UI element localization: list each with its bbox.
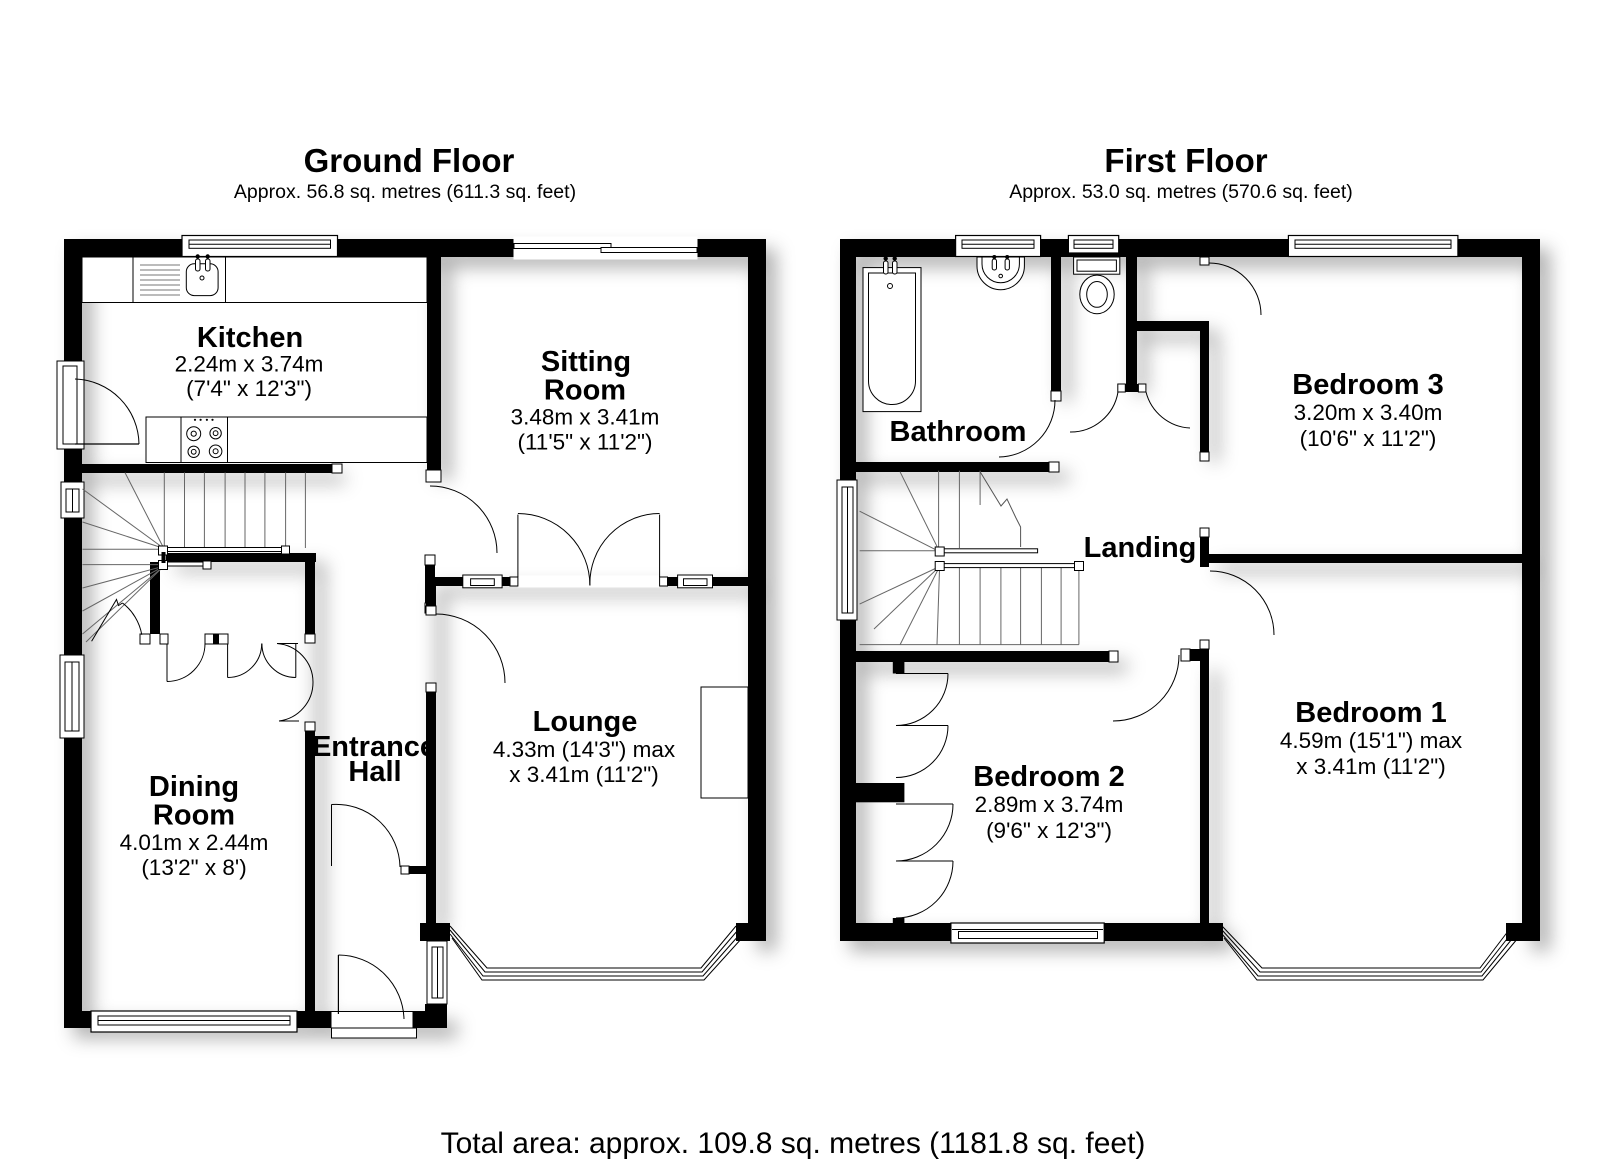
svg-text:Bedroom 1: Bedroom 1: [1295, 697, 1446, 729]
svg-text:Kitchen: Kitchen: [197, 322, 303, 354]
svg-text:Approx. 53.0 sq. metres (570.6: Approx. 53.0 sq. metres (570.6 sq. feet): [1009, 181, 1353, 203]
svg-text:Sitting: Sitting: [541, 346, 631, 378]
svg-text:Landing: Landing: [1084, 532, 1197, 564]
svg-text:2.89m x 3.74m: 2.89m x 3.74m: [975, 792, 1124, 817]
svg-text:4.01m x 2.44m: 4.01m x 2.44m: [120, 830, 269, 855]
svg-text:4.59m (15'1") max: 4.59m (15'1") max: [1280, 728, 1463, 753]
svg-text:Dining: Dining: [149, 771, 239, 803]
svg-text:Bathroom: Bathroom: [890, 416, 1027, 448]
svg-text:Total area: approx. 109.8 sq.: Total area: approx. 109.8 sq. metres (11…: [441, 1127, 1146, 1160]
svg-text:(11'5" x 11'2"): (11'5" x 11'2"): [517, 430, 652, 455]
svg-text:x 3.41m (11'2"): x 3.41m (11'2"): [509, 762, 658, 787]
svg-text:3.48m x 3.41m: 3.48m x 3.41m: [511, 405, 660, 430]
svg-text:Room: Room: [153, 800, 235, 832]
svg-text:First Floor: First Floor: [1104, 142, 1267, 179]
svg-text:(10'6" x 11'2"): (10'6" x 11'2"): [1300, 426, 1437, 451]
svg-text:Bedroom 3: Bedroom 3: [1292, 369, 1443, 401]
svg-text:2.24m x 3.74m: 2.24m x 3.74m: [175, 352, 324, 377]
svg-text:Room: Room: [544, 375, 626, 407]
svg-text:x 3.41m (11'2"): x 3.41m (11'2"): [1296, 754, 1445, 779]
svg-text:3.20m x 3.40m: 3.20m x 3.40m: [1294, 400, 1443, 425]
svg-text:(7'4" x 12'3"): (7'4" x 12'3"): [186, 376, 312, 401]
svg-text:(9'6" x 12'3"): (9'6" x 12'3"): [986, 818, 1112, 843]
svg-text:Ground Floor: Ground Floor: [304, 142, 515, 179]
svg-text:Approx. 56.8 sq. metres (611.3: Approx. 56.8 sq. metres (611.3 sq. feet): [234, 181, 576, 203]
svg-text:4.33m (14'3") max: 4.33m (14'3") max: [493, 737, 676, 762]
svg-text:(13'2" x 8'): (13'2" x 8'): [141, 855, 246, 880]
svg-text:Hall: Hall: [348, 756, 401, 788]
svg-text:Bedroom 2: Bedroom 2: [973, 761, 1124, 793]
svg-text:Lounge: Lounge: [533, 706, 638, 738]
